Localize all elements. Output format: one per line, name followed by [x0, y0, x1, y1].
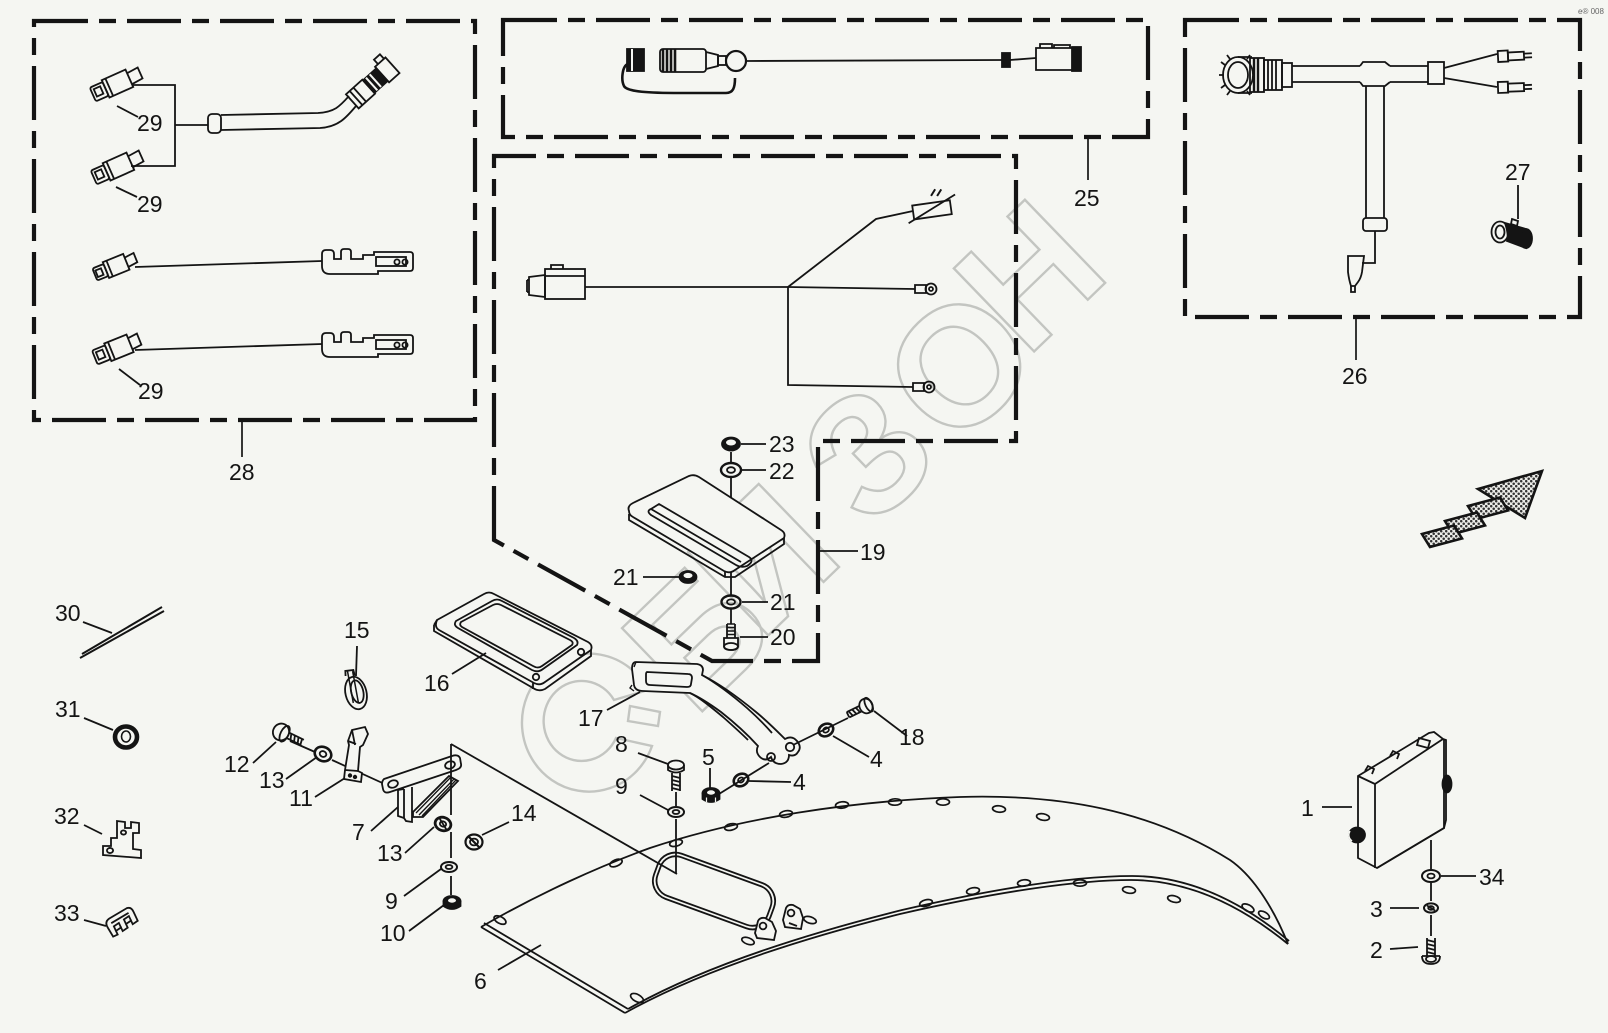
svg-text:e® 008: e® 008 — [1578, 7, 1604, 16]
svg-text:17: 17 — [578, 705, 604, 731]
svg-text:23: 23 — [769, 431, 795, 457]
svg-text:22: 22 — [769, 458, 795, 484]
svg-text:6: 6 — [474, 968, 487, 994]
svg-text:4: 4 — [793, 769, 806, 795]
svg-text:11: 11 — [289, 785, 313, 811]
svg-text:33: 33 — [54, 900, 80, 926]
svg-text:7: 7 — [352, 819, 365, 845]
svg-text:1: 1 — [1301, 795, 1314, 821]
svg-text:10: 10 — [380, 920, 406, 946]
svg-text:9: 9 — [615, 773, 628, 799]
svg-text:16: 16 — [424, 670, 450, 696]
svg-text:8: 8 — [615, 731, 628, 757]
svg-text:13: 13 — [259, 767, 285, 793]
svg-text:5: 5 — [702, 744, 715, 770]
svg-text:9: 9 — [385, 888, 398, 914]
svg-text:3: 3 — [1370, 896, 1383, 922]
svg-text:4: 4 — [870, 746, 883, 772]
svg-text:19: 19 — [860, 539, 886, 565]
svg-text:13: 13 — [377, 840, 403, 866]
svg-text:26: 26 — [1342, 363, 1368, 389]
svg-text:18: 18 — [899, 724, 925, 750]
svg-text:29: 29 — [137, 191, 163, 217]
svg-text:29: 29 — [137, 110, 163, 136]
svg-text:34: 34 — [1479, 864, 1505, 890]
svg-text:32: 32 — [54, 803, 80, 829]
svg-text:14: 14 — [511, 800, 537, 826]
svg-text:21: 21 — [770, 589, 796, 615]
svg-text:28: 28 — [229, 459, 255, 485]
svg-text:29: 29 — [138, 378, 164, 404]
svg-text:20: 20 — [770, 624, 796, 650]
svg-text:12: 12 — [224, 751, 250, 777]
svg-text:27: 27 — [1505, 159, 1531, 185]
svg-text:30: 30 — [55, 600, 81, 626]
svg-text:31: 31 — [55, 696, 81, 722]
svg-text:21: 21 — [613, 564, 639, 590]
svg-text:25: 25 — [1074, 185, 1100, 211]
svg-text:15: 15 — [344, 617, 370, 643]
svg-text:2: 2 — [1370, 937, 1383, 963]
